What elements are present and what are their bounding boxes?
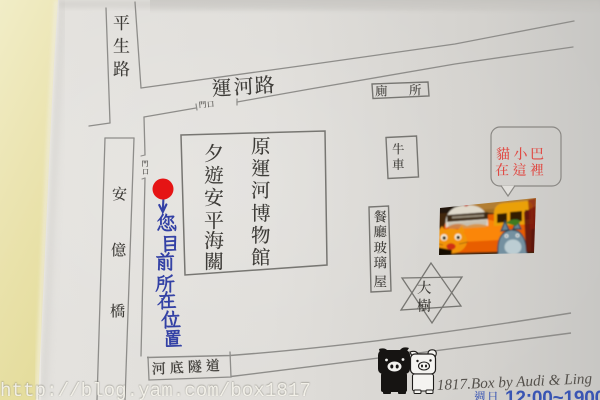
svg-text:http://blog.yam.com/box1817: http://blog.yam.com/box1817 xyxy=(0,380,311,400)
